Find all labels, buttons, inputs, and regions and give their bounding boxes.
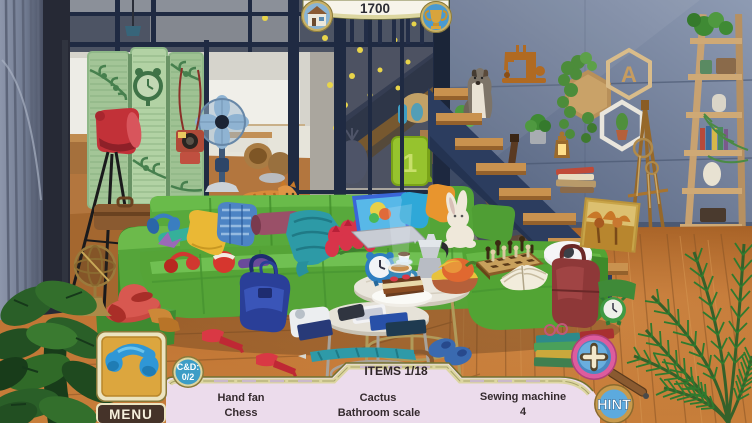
- svg-text:4: 4: [520, 406, 527, 418]
- svg-text:HINT: HINT: [597, 398, 631, 414]
- svg-text:Chess: Chess: [224, 407, 257, 419]
- svg-text:Bathroom scale: Bathroom scale: [338, 407, 421, 419]
- svg-text:A: A: [621, 62, 637, 87]
- svg-text:Hand fan: Hand fan: [217, 392, 264, 404]
- svg-text:ITEMS 1/18: ITEMS 1/18: [364, 364, 428, 378]
- svg-text:0/2: 0/2: [182, 372, 195, 382]
- svg-text:MENU: MENU: [109, 407, 153, 422]
- svg-text:1700: 1700: [360, 1, 390, 16]
- svg-text:1: 1: [403, 148, 417, 178]
- svg-text:Sewing machine: Sewing machine: [480, 391, 566, 403]
- svg-text:C&D:: C&D:: [177, 362, 200, 372]
- svg-text:Cactus: Cactus: [360, 392, 397, 404]
